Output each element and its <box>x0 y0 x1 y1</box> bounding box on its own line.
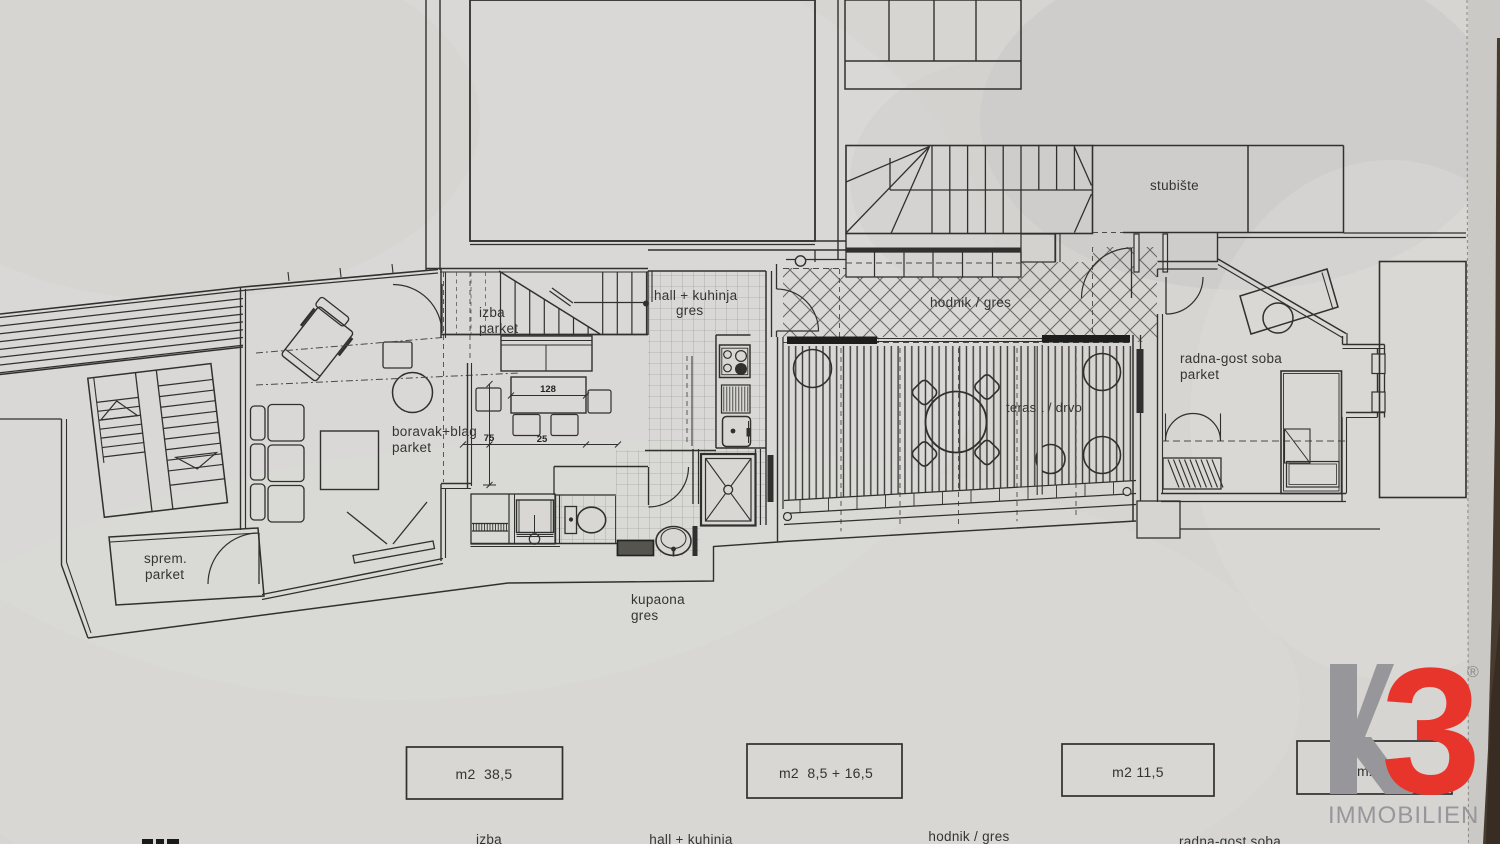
svg-text:hodnik / gres: hodnik / gres <box>930 295 1011 310</box>
svg-text:hall + kuhinja: hall + kuhinja <box>649 832 733 844</box>
svg-text:parket: parket <box>145 567 184 582</box>
svg-text:25: 25 <box>537 434 548 445</box>
svg-text:IMMOBILIEN: IMMOBILIEN <box>1328 802 1479 829</box>
svg-text:®: ® <box>1467 664 1479 681</box>
svg-text:m2 8,5 + 16,5: m2 8,5 + 16,5 <box>779 765 873 781</box>
svg-text:radna-gost soba: radna-gost soba <box>1179 834 1281 844</box>
svg-text:izba: izba <box>476 832 502 844</box>
svg-text:stubište: stubište <box>1150 178 1199 193</box>
svg-text:m2 11,5: m2 11,5 <box>1112 764 1164 780</box>
svg-text:hodnik / gres: hodnik / gres <box>928 829 1009 844</box>
svg-text:parket: parket <box>392 440 431 455</box>
svg-text:hall + kuhinja: hall + kuhinja <box>654 288 738 303</box>
svg-text:m2 38,5: m2 38,5 <box>456 766 513 782</box>
svg-text:boravak+blag: boravak+blag <box>392 424 477 439</box>
svg-text:gres: gres <box>676 303 703 318</box>
svg-text:128: 128 <box>540 384 556 395</box>
svg-text:kupaona: kupaona <box>631 592 685 607</box>
svg-text:parket: parket <box>1180 367 1219 382</box>
svg-text:radna-gost soba: radna-gost soba <box>1180 351 1282 366</box>
svg-text:sprem.: sprem. <box>144 551 187 566</box>
svg-text:gres: gres <box>631 608 658 623</box>
svg-text:parket: parket <box>479 321 518 336</box>
svg-text:izba: izba <box>479 305 505 320</box>
